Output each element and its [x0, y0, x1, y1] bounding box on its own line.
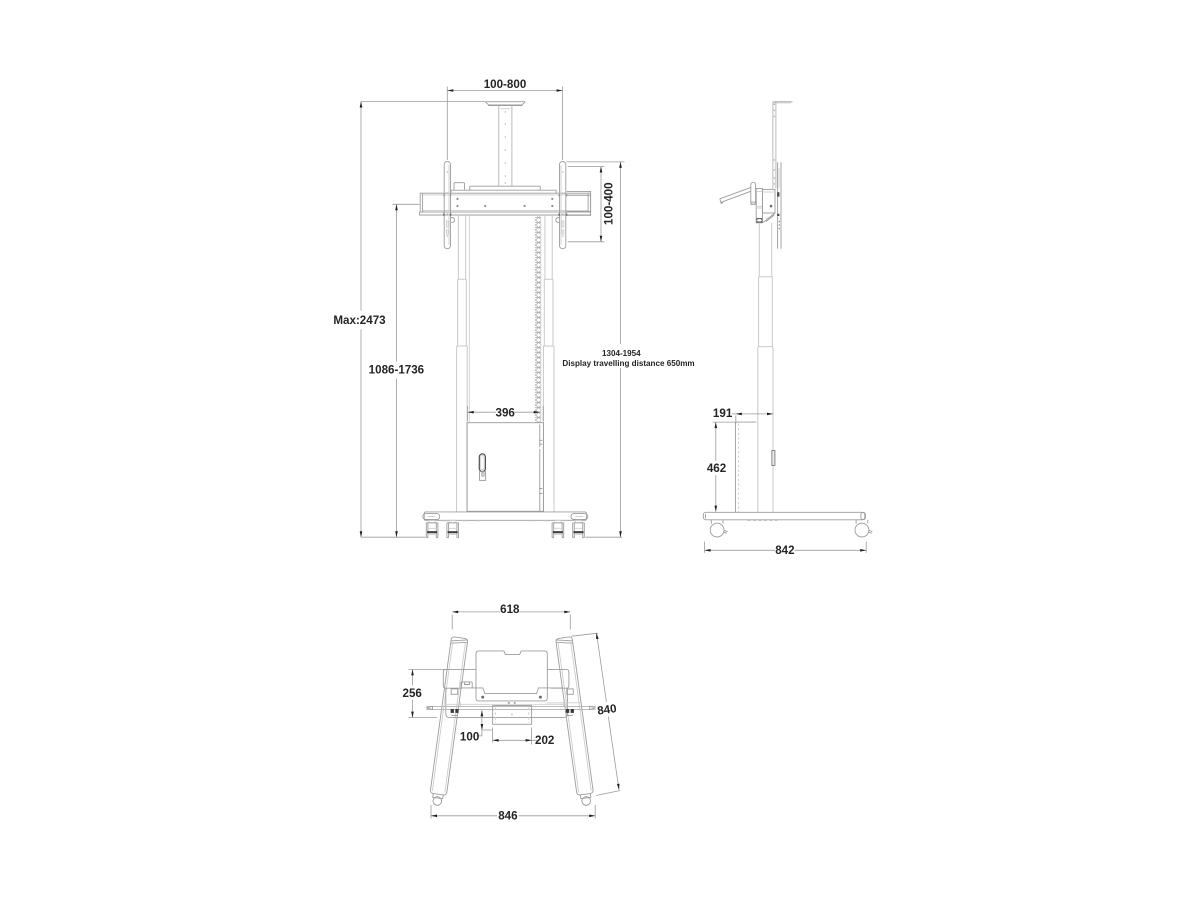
svg-text:618: 618: [500, 603, 520, 616]
svg-text:1304-1954: 1304-1954: [602, 349, 641, 358]
svg-text:100: 100: [460, 730, 479, 743]
svg-text:846: 846: [498, 810, 518, 823]
svg-text:462: 462: [707, 462, 726, 475]
svg-text:396: 396: [496, 406, 516, 419]
svg-text:Max:2473: Max:2473: [333, 314, 386, 327]
svg-text:202: 202: [535, 734, 554, 747]
svg-text:100-800: 100-800: [484, 78, 527, 91]
svg-text:256: 256: [403, 687, 423, 700]
svg-text:1086-1736: 1086-1736: [369, 364, 425, 377]
svg-text:840: 840: [596, 702, 617, 718]
svg-text:100-400: 100-400: [602, 182, 615, 225]
svg-text:842: 842: [775, 544, 794, 557]
svg-text:Display travelling distance 65: Display travelling distance 650mm: [562, 359, 694, 368]
svg-text:191: 191: [713, 407, 733, 420]
